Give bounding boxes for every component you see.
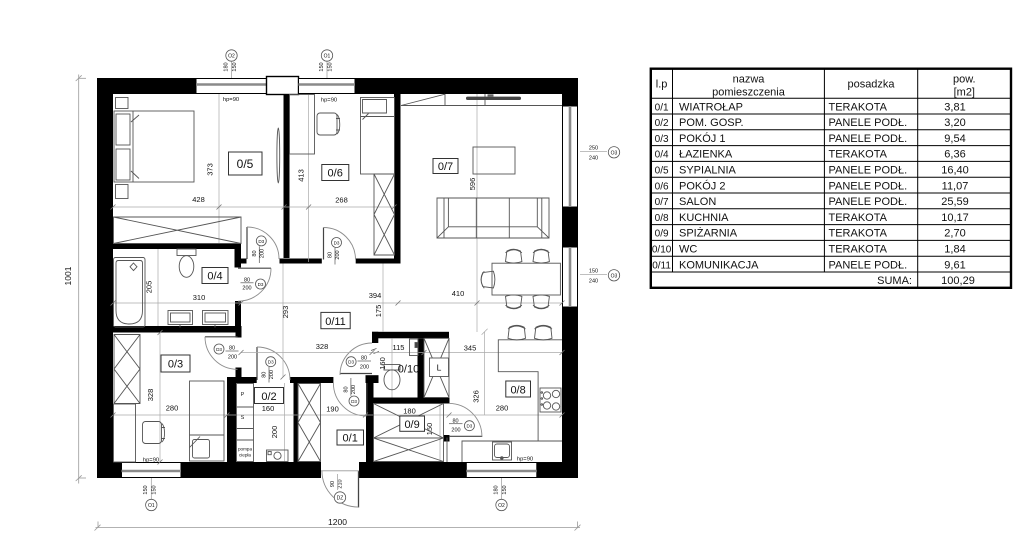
svg-text:l.p: l.p bbox=[656, 79, 668, 91]
svg-text:TERAKOTA: TERAKOTA bbox=[829, 212, 888, 224]
svg-text:TERAKOTA: TERAKOTA bbox=[829, 149, 888, 161]
svg-text:200: 200 bbox=[270, 426, 279, 439]
svg-text:210: 210 bbox=[338, 479, 344, 488]
svg-text:6,36: 6,36 bbox=[944, 149, 965, 161]
svg-text:D3: D3 bbox=[258, 239, 264, 244]
svg-text:SUMA:: SUMA: bbox=[877, 275, 912, 287]
svg-text:293: 293 bbox=[281, 306, 290, 319]
svg-text:150: 150 bbox=[152, 485, 158, 494]
svg-text:80: 80 bbox=[344, 386, 350, 392]
svg-text:326: 326 bbox=[472, 390, 481, 403]
svg-text:9,61: 9,61 bbox=[944, 259, 965, 271]
svg-text:150: 150 bbox=[143, 485, 149, 494]
svg-text:O3: O3 bbox=[611, 274, 618, 280]
svg-text:D3: D3 bbox=[258, 282, 264, 287]
svg-text:[m2]: [m2] bbox=[954, 87, 975, 99]
svg-text:0/10: 0/10 bbox=[652, 245, 672, 256]
svg-text:0/3: 0/3 bbox=[168, 359, 183, 371]
svg-text:PANELE PODŁ.: PANELE PODŁ. bbox=[829, 165, 908, 177]
svg-text:100,29: 100,29 bbox=[941, 275, 975, 287]
svg-text:115: 115 bbox=[393, 343, 405, 352]
svg-text:O1: O1 bbox=[148, 503, 155, 509]
svg-text:0/11: 0/11 bbox=[325, 316, 346, 328]
svg-text:KUCHNIA: KUCHNIA bbox=[679, 212, 729, 224]
svg-text:pow.: pow. bbox=[953, 74, 976, 86]
svg-text:180: 180 bbox=[493, 485, 499, 494]
svg-text:SPIŻARNIA: SPIŻARNIA bbox=[679, 227, 738, 240]
svg-text:160: 160 bbox=[378, 357, 387, 370]
svg-text:2,70: 2,70 bbox=[944, 228, 965, 240]
svg-text:1001: 1001 bbox=[63, 266, 73, 285]
svg-text:80: 80 bbox=[252, 250, 258, 256]
svg-text:DZ: DZ bbox=[337, 496, 344, 502]
svg-text:150: 150 bbox=[319, 62, 325, 71]
svg-text:25,59: 25,59 bbox=[941, 196, 969, 208]
svg-text:TERAKOTA: TERAKOTA bbox=[829, 101, 888, 113]
svg-text:D3: D3 bbox=[348, 360, 354, 365]
svg-text:16,40: 16,40 bbox=[941, 165, 969, 177]
svg-text:328: 328 bbox=[146, 389, 155, 402]
svg-text:240: 240 bbox=[589, 156, 598, 162]
svg-text:310: 310 bbox=[193, 293, 206, 302]
svg-text:11,07: 11,07 bbox=[942, 180, 969, 192]
svg-text:0/9: 0/9 bbox=[655, 229, 669, 240]
svg-text:SYPIALNIA: SYPIALNIA bbox=[679, 165, 737, 177]
svg-text:O2: O2 bbox=[228, 54, 235, 60]
svg-text:0/2: 0/2 bbox=[655, 118, 669, 129]
svg-text:0/5: 0/5 bbox=[237, 157, 254, 171]
svg-text:POKÓJ 2: POKÓJ 2 bbox=[679, 179, 725, 192]
svg-text:L: L bbox=[437, 363, 442, 373]
svg-text:PANELE PODŁ.: PANELE PODŁ. bbox=[829, 196, 908, 208]
svg-text:3,81: 3,81 bbox=[944, 101, 965, 113]
svg-text:KOMUNIKACJA: KOMUNIKACJA bbox=[679, 259, 759, 271]
svg-text:205: 205 bbox=[145, 281, 154, 294]
svg-text:O1: O1 bbox=[324, 54, 331, 60]
svg-text:hp=90: hp=90 bbox=[143, 457, 159, 463]
svg-text:3,20: 3,20 bbox=[944, 117, 965, 129]
svg-text:345: 345 bbox=[464, 344, 477, 353]
svg-text:ŁAZIENKA: ŁAZIENKA bbox=[679, 149, 733, 161]
svg-text:200: 200 bbox=[451, 427, 460, 433]
svg-text:0/7: 0/7 bbox=[438, 161, 453, 173]
svg-text:hp=90: hp=90 bbox=[223, 97, 239, 103]
svg-text:9,54: 9,54 bbox=[944, 133, 965, 145]
svg-text:160: 160 bbox=[262, 404, 275, 413]
svg-text:80: 80 bbox=[229, 346, 235, 352]
svg-text:WIATROŁAP: WIATROŁAP bbox=[679, 101, 743, 113]
svg-text:80: 80 bbox=[262, 372, 268, 378]
svg-text:328: 328 bbox=[316, 342, 329, 351]
svg-text:0/4: 0/4 bbox=[655, 150, 669, 161]
svg-text:ciepła: ciepła bbox=[239, 453, 251, 458]
svg-text:0/7: 0/7 bbox=[655, 197, 669, 208]
svg-text:150: 150 bbox=[232, 62, 238, 71]
svg-text:150: 150 bbox=[327, 62, 333, 71]
svg-text:O2: O2 bbox=[498, 503, 505, 509]
svg-text:80: 80 bbox=[328, 252, 334, 258]
svg-text:pompa: pompa bbox=[238, 447, 252, 452]
svg-text:hp=90: hp=90 bbox=[321, 98, 337, 104]
svg-text:TERAKOTA: TERAKOTA bbox=[829, 228, 888, 240]
svg-text:0/2: 0/2 bbox=[261, 391, 276, 403]
svg-text:PANELE PODŁ.: PANELE PODŁ. bbox=[829, 180, 908, 192]
svg-text:150: 150 bbox=[589, 269, 598, 275]
svg-text:280: 280 bbox=[496, 404, 509, 413]
svg-text:200: 200 bbox=[228, 355, 237, 361]
svg-text:0/5: 0/5 bbox=[655, 166, 669, 177]
svg-text:10,17: 10,17 bbox=[941, 212, 969, 224]
svg-text:268: 268 bbox=[335, 196, 348, 205]
svg-text:200: 200 bbox=[242, 286, 251, 292]
svg-text:90: 90 bbox=[330, 481, 336, 487]
svg-text:200: 200 bbox=[360, 365, 369, 371]
svg-text:PANELE PODŁ.: PANELE PODŁ. bbox=[829, 133, 908, 145]
svg-text:240: 240 bbox=[589, 279, 598, 285]
svg-text:250: 250 bbox=[589, 146, 598, 152]
svg-text:150: 150 bbox=[425, 423, 434, 436]
svg-text:S: S bbox=[241, 415, 245, 421]
svg-text:413: 413 bbox=[297, 169, 306, 182]
svg-text:1200: 1200 bbox=[328, 517, 347, 527]
svg-text:0/8: 0/8 bbox=[655, 213, 669, 224]
svg-text:280: 280 bbox=[166, 404, 179, 413]
svg-text:pomieszczenia: pomieszczenia bbox=[712, 87, 786, 99]
svg-text:P: P bbox=[241, 392, 245, 398]
svg-text:0/1: 0/1 bbox=[655, 102, 669, 113]
svg-text:200: 200 bbox=[269, 370, 275, 379]
svg-text:200: 200 bbox=[259, 249, 265, 258]
svg-text:190: 190 bbox=[326, 405, 339, 414]
svg-text:D3: D3 bbox=[216, 347, 222, 352]
svg-text:hp=90: hp=90 bbox=[517, 457, 533, 463]
svg-text:PANELE PODŁ.: PANELE PODŁ. bbox=[829, 259, 908, 271]
svg-text:WC: WC bbox=[679, 244, 697, 256]
svg-text:O3: O3 bbox=[611, 151, 618, 157]
svg-text:394: 394 bbox=[369, 291, 382, 300]
svg-text:428: 428 bbox=[192, 195, 205, 204]
svg-text:180: 180 bbox=[223, 62, 229, 71]
svg-text:373: 373 bbox=[206, 163, 215, 176]
svg-text:0/11: 0/11 bbox=[652, 260, 671, 271]
svg-text:200: 200 bbox=[335, 250, 341, 259]
svg-text:D3: D3 bbox=[334, 241, 340, 246]
svg-text:596: 596 bbox=[468, 178, 477, 191]
svg-text:200: 200 bbox=[351, 385, 357, 394]
svg-text:0/6: 0/6 bbox=[655, 181, 669, 192]
svg-text:D3: D3 bbox=[268, 360, 274, 365]
svg-text:0/6: 0/6 bbox=[328, 168, 343, 180]
svg-text:POM. GOSP.: POM. GOSP. bbox=[679, 117, 744, 129]
svg-text:0/9: 0/9 bbox=[404, 419, 419, 431]
svg-text:PANELE PODŁ.: PANELE PODŁ. bbox=[829, 117, 908, 129]
svg-text:180: 180 bbox=[403, 407, 416, 416]
svg-text:nazwa: nazwa bbox=[733, 74, 766, 86]
svg-text:SALON: SALON bbox=[679, 196, 716, 208]
svg-text:0/3: 0/3 bbox=[655, 134, 669, 145]
svg-text:D3: D3 bbox=[351, 399, 357, 404]
svg-text:0/8: 0/8 bbox=[510, 384, 525, 396]
svg-text:0/4: 0/4 bbox=[207, 271, 222, 283]
svg-text:D3: D3 bbox=[466, 424, 472, 429]
svg-text:TERAKOTA: TERAKOTA bbox=[829, 244, 888, 256]
svg-text:175: 175 bbox=[374, 305, 383, 318]
svg-text:0/1: 0/1 bbox=[343, 433, 358, 445]
svg-text:POKÓJ 1: POKÓJ 1 bbox=[679, 132, 725, 145]
svg-text:0/10: 0/10 bbox=[398, 364, 419, 376]
svg-text:150: 150 bbox=[502, 485, 508, 494]
svg-text:410: 410 bbox=[452, 289, 465, 298]
svg-text:1,84: 1,84 bbox=[944, 244, 965, 256]
svg-text:posadzka: posadzka bbox=[847, 79, 895, 91]
